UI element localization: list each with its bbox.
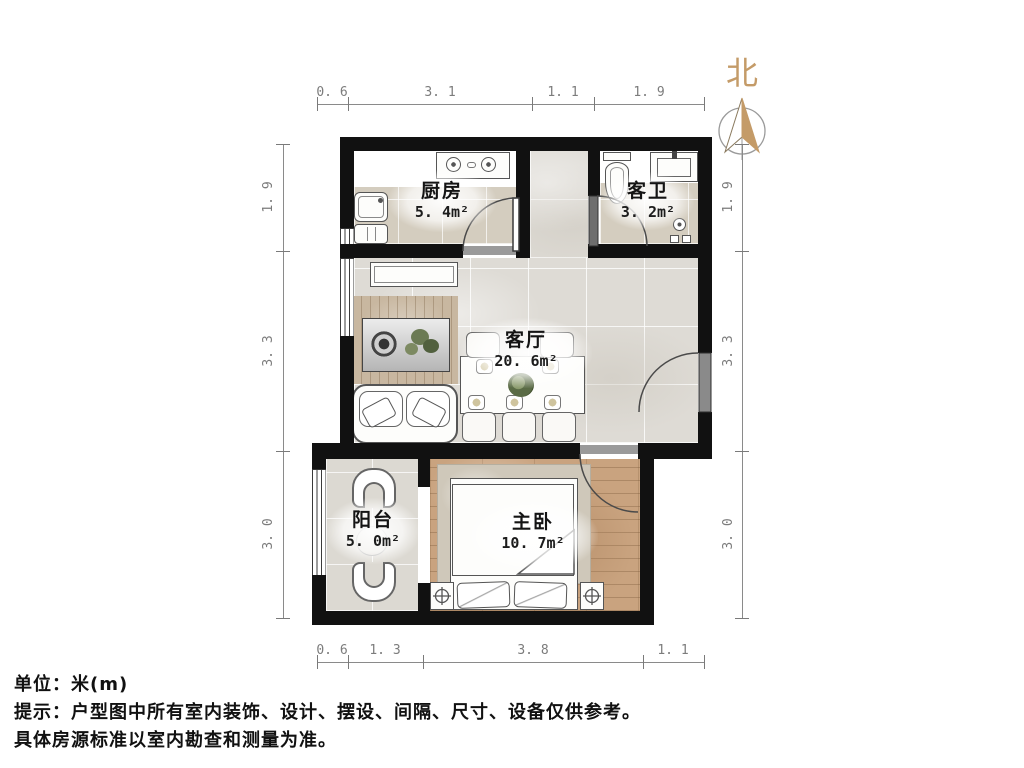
kitchen-door-sill (463, 246, 516, 255)
shower-foot-right (682, 235, 691, 243)
dining-chair-bottom-1 (462, 412, 496, 442)
wall-lower-left (312, 575, 326, 611)
dim-line-top (317, 104, 704, 105)
dim-top-3: 1. 9 (619, 85, 679, 100)
wall-left-lower (340, 336, 354, 443)
dim-tick-left-1 (276, 144, 290, 145)
wall-kitchen-bottom (340, 244, 463, 258)
bathroom-door-leaf (589, 196, 598, 246)
wall-bottom (312, 611, 654, 625)
kitchen-cabinet-line2 (375, 227, 376, 241)
dim-top-0: 0. 6 (302, 85, 362, 100)
dim-right-0: 1. 9 (721, 177, 735, 217)
tv-plant-leaf2 (423, 339, 439, 353)
balcony-window (312, 469, 326, 577)
kitchen-cabinet-line1 (367, 227, 368, 241)
wall-divider-top (418, 459, 430, 487)
toilet-tank (603, 152, 631, 161)
bedroom-area: 10. 7m² (501, 534, 564, 554)
dim-top-2: 1. 1 (533, 85, 593, 100)
dim-line-right (742, 144, 743, 618)
bathroom-label: 客卫 3. 2m² (602, 181, 694, 222)
wall-top (340, 137, 712, 151)
corridor-floor (530, 151, 588, 258)
wall-kitchen-right (516, 151, 530, 258)
entry-cabinet (370, 262, 458, 287)
plate-3 (468, 395, 485, 410)
wall-lower-left-corner (312, 459, 326, 469)
dim-line-bottom (317, 662, 704, 663)
entry-cabinet-inner (374, 266, 454, 283)
kitchen-cabinet (354, 224, 388, 244)
bedroom-label: 主卧 10. 7m² (478, 512, 588, 553)
dim-bottom-0: 0. 6 (302, 643, 362, 658)
kitchen-area: 5. 4m² (415, 203, 469, 223)
tv-plant-leaf3 (405, 343, 418, 355)
living-name: 客厅 (505, 330, 547, 352)
dim-right-1: 3. 3 (721, 331, 735, 371)
footer-note-line2: 具体房源标准以室内勘查和测量为准。 (14, 726, 337, 752)
wall-bedroom-right (640, 459, 654, 611)
wall-mid-horizontal-right (638, 443, 712, 459)
entry-door-leaf (699, 353, 711, 412)
floorplan-page: { "compass": { "label": "北" }, "rooms": … (0, 0, 1024, 768)
living-label: 客厅 20. 6m² (470, 330, 582, 371)
dim-left-0: 1. 9 (261, 177, 275, 217)
balcony-label: 阳台 5. 0m² (330, 510, 416, 551)
wall-bath-bottom (588, 244, 712, 258)
dining-chair-bottom-2 (502, 412, 536, 442)
dim-tick-top-5 (704, 97, 705, 111)
wall-divider-bottom (418, 583, 430, 611)
wall-bath-left-upper (588, 151, 600, 196)
dim-line-left (283, 144, 284, 618)
plate-5 (544, 395, 561, 410)
bed-pillow-left (457, 581, 511, 609)
dim-tick-bottom-3 (423, 655, 424, 669)
sofa (352, 384, 458, 444)
north-label: 北 (726, 48, 758, 94)
bathroom-name: 客卫 (627, 181, 669, 203)
bedroom-name: 主卧 (512, 512, 554, 534)
footer-unit-line: 单位：米(m) (14, 670, 128, 696)
living-area: 20. 6m² (494, 352, 557, 372)
dim-top-1: 3. 1 (410, 85, 470, 100)
bathroom-area: 3. 2m² (621, 203, 675, 223)
dim-tick-left-2 (276, 251, 290, 252)
dim-bottom-2: 3. 8 (503, 643, 563, 658)
kitchen-label: 厨房 5. 4m² (395, 181, 489, 222)
footer-note-line1: 提示：户型图中所有室内装饰、设计、摆设、间隔、尺寸、设备仅供参考。 (14, 698, 641, 724)
kitchen-name: 厨房 (421, 181, 463, 203)
wall-mid-horizontal-left (312, 443, 580, 459)
dim-tick-right-4 (735, 618, 749, 619)
dim-tick-top-4 (594, 97, 595, 111)
nightstand-right (580, 582, 604, 610)
dim-left-2: 3. 0 (261, 514, 275, 554)
dim-tick-right-3 (735, 451, 749, 452)
wall-left-upper (340, 151, 354, 228)
nightstand-left (430, 582, 454, 610)
bedroom-door-sill (580, 445, 638, 454)
dim-tick-bottom-5 (704, 655, 705, 669)
balcony-chair-bottom-cut (363, 562, 385, 588)
dim-left-1: 3. 3 (261, 331, 275, 371)
stove-control (467, 162, 476, 168)
balcony-area: 5. 0m² (346, 532, 400, 552)
dining-chair-bottom-3 (542, 412, 576, 442)
balcony-name: 阳台 (352, 510, 394, 532)
bathroom-sink-faucet (672, 151, 677, 159)
dim-tick-right-1 (735, 144, 749, 145)
dim-right-2: 3. 0 (721, 514, 735, 554)
dim-tick-left-4 (276, 618, 290, 619)
dim-tick-right-2 (735, 251, 749, 252)
kitchen-sink (354, 192, 388, 222)
dim-tick-left-3 (276, 451, 290, 452)
balcony-chair-bottom (352, 562, 396, 602)
dim-bottom-1: 1. 3 (355, 643, 415, 658)
kitchen-sink-faucet (378, 198, 383, 203)
speaker-icon (371, 331, 397, 357)
living-window (340, 258, 354, 338)
wall-right-upper (698, 137, 712, 353)
shower-foot-left (670, 235, 679, 243)
bed-pillow-right (514, 581, 568, 609)
plate-4 (506, 395, 523, 410)
tv-console (362, 318, 450, 372)
dim-bottom-3: 1. 1 (643, 643, 703, 658)
